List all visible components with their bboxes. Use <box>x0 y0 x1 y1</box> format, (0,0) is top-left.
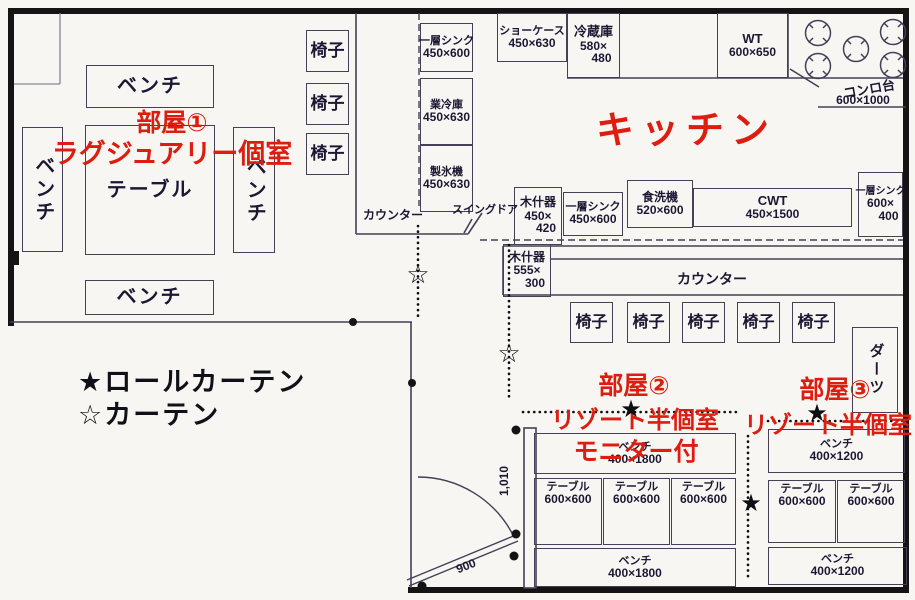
roll-curtain-star-icon: ★ <box>806 402 828 426</box>
curtain-star-icon: ☆ <box>406 261 429 287</box>
roll-curtain-star-icon: ★ <box>740 492 762 516</box>
kitchen-title: キッチン <box>596 112 776 150</box>
room2-note: モニター付 <box>573 440 698 465</box>
curtain-star-icon: ☆ <box>497 340 520 366</box>
room1-title: 部屋① <box>136 111 207 136</box>
room1-subtitle: ラグジュアリー個室 <box>52 141 293 168</box>
room3-subtitle: リゾート半個室 <box>744 414 912 438</box>
curtain-lines <box>0 0 915 600</box>
roll-curtain-star-icon: ★ <box>620 398 642 422</box>
floor-plan: 部屋① ラグジュアリー個室 ベンチ ベンチ テーブル ベンチ ベンチ 椅子 椅子… <box>0 0 915 600</box>
